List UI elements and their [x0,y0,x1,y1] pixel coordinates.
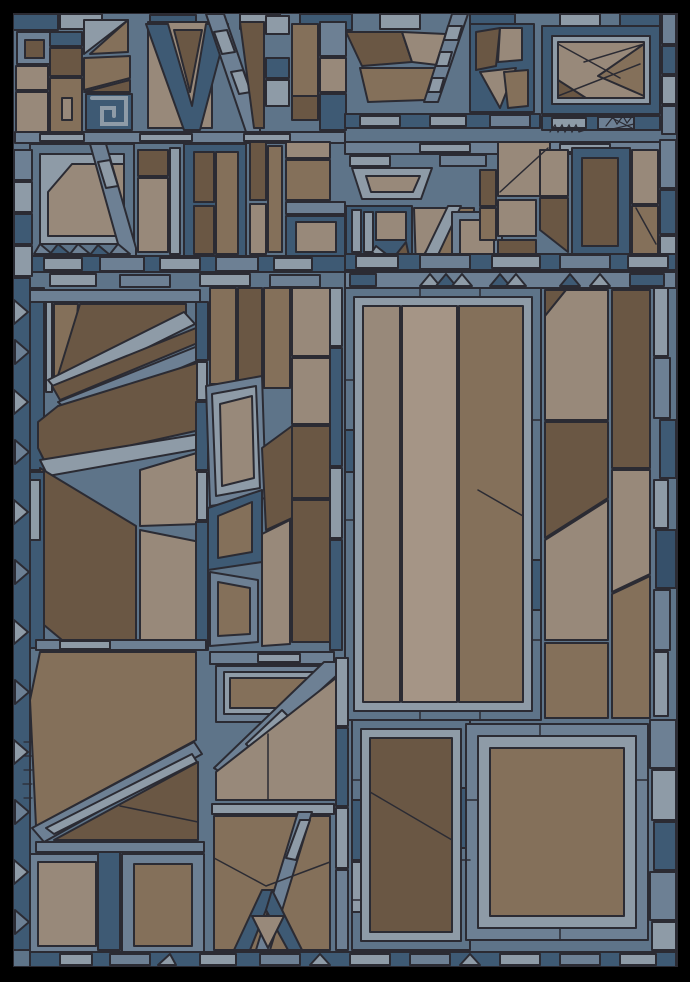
mosaic-cell [630,274,664,286]
mosaic-cell [25,40,44,58]
mosaic-cell [500,954,540,965]
mosaic-cell [200,954,236,965]
mosaic-cell [62,98,72,120]
mosaic-cell [194,206,214,254]
mosaic-cell [350,954,390,965]
mosaic-cell [60,954,92,965]
mosaic-artwork [0,0,690,982]
mosaic-cell [628,256,668,268]
mosaic-cell [14,182,32,212]
mosaic-cell [498,28,522,62]
mosaic-cell [632,206,658,254]
mosaic-cell [560,954,600,965]
mosaic-cell [16,92,48,132]
mosaic-cell [662,46,676,74]
mosaic-cell [330,348,342,466]
mosaic-cell [320,58,346,92]
mosaic-cell [120,275,170,287]
mosaic-cell [370,738,452,932]
mosaic-cell [376,212,406,240]
mosaic-cell [364,212,373,252]
mosaic-cell [210,288,236,384]
mosaic-cell [292,426,330,498]
mosaic-cell [194,152,214,202]
mosaic-cell [490,748,624,916]
mosaic-cell [262,520,290,646]
mosaic-cell [350,274,376,286]
mosaic-cell [40,134,84,141]
mosaic-cell [292,96,318,120]
mosaic-cell [270,275,320,287]
mosaic-cell [292,288,330,356]
mosaic-cell [38,862,96,946]
mosaic-cell [430,116,466,126]
mosaic-cell [612,576,650,718]
mosaic-cell [444,26,462,40]
mosaic-cell [656,530,676,588]
mosaic-cell [350,156,390,166]
mosaic-cell [654,288,668,356]
mosaic-cell [345,430,354,472]
mosaic-cell [266,16,289,34]
mosaic-cell [420,144,470,152]
mosaic-cell [428,78,444,92]
mosaic-cell [498,200,536,236]
mosaic-cell [138,178,168,252]
mosaic-cell [540,150,568,196]
mosaic-cell [286,142,330,158]
mosaic-cell [336,808,348,868]
mosaic-cell [100,257,144,271]
mosaic-cell [654,652,668,716]
mosaic-cell [654,590,670,650]
mosaic-cell [480,208,496,240]
mosaic-cell [504,70,528,108]
mosaic-cell [582,158,618,246]
mosaic-cell [260,954,300,965]
mosaic-cell [662,106,676,134]
mosaic-cell [652,770,676,820]
mosaic-cell [292,358,330,424]
mosaic-cell [170,148,180,254]
mosaic-cell [654,822,676,870]
mosaic-cell [490,115,530,127]
mosaic-cell [13,14,58,30]
mosaic-cell [140,530,200,648]
mosaic-cell [212,804,334,814]
mosaic-cell [216,257,258,271]
mosaic-cell [196,302,208,360]
mosaic-cell [436,52,452,66]
mosaic-cell [654,358,670,418]
mosaic-cell [360,116,400,126]
mosaic-cell [50,48,82,76]
mosaic-cell [356,256,398,268]
mosaic-cell [352,862,361,912]
mosaic-cell [14,246,32,276]
mosaic-cell [266,58,289,78]
mosaic-cell [654,480,668,528]
mosaic-page [0,0,690,982]
mosaic-cell [238,288,262,380]
mosaic-cell [420,255,470,269]
mosaic-cell [652,922,676,950]
mosaic-cell [264,288,290,388]
mosaic-cell [320,94,346,130]
mosaic-cell [244,134,290,141]
mosaic-cell [50,32,82,46]
mosaic-cell [266,80,289,106]
mosaic-cell [612,290,650,468]
mosaic-cell [410,954,450,965]
mosaic-cell [402,306,457,702]
mosaic-cell [650,720,676,768]
mosaic-cell [440,155,486,166]
mosaic-cell [662,76,676,104]
mosaic-cell [320,22,346,56]
mosaic-cell [336,728,348,806]
mosaic-cell [16,66,48,90]
mosaic-cell [220,396,254,486]
black-border [0,0,690,13]
mosaic-cell [612,470,650,592]
mosaic-cell [662,14,676,44]
mosaic-cell [292,24,318,96]
mosaic-cell [292,500,330,642]
mosaic-cell [660,420,676,478]
black-border [0,0,13,982]
mosaic-cell [44,258,82,270]
mosaic-cell [380,14,420,29]
mosaic-cell [492,256,540,268]
mosaic-cell [532,560,541,610]
mosaic-cell [160,258,200,270]
mosaic-cell [258,654,300,662]
mosaic-cell [110,954,150,965]
mosaic-cell [480,170,496,206]
mosaic-cell [98,852,120,950]
mosaic-cell [296,222,336,252]
mosaic-cell [286,202,345,214]
mosaic-cell [476,28,500,70]
mosaic-cell [197,472,207,520]
mosaic-cell [196,522,208,650]
mosaic-cell [134,864,192,946]
mosaic-cell [366,176,420,192]
mosaic-cell [352,210,361,252]
mosaic-cell [330,540,342,650]
mosaic-cell [286,160,330,200]
mosaic-cell [140,134,192,141]
mosaic-cell [545,290,608,420]
mosaic-cell [36,842,204,852]
mosaic-cell [336,870,348,950]
mosaic-cell [30,480,40,540]
mosaic-cell [218,582,250,636]
mosaic-cell [336,658,348,726]
mosaic-cell [620,954,656,965]
mosaic-cell [363,306,400,702]
mosaic-cell [268,146,282,252]
mosaic-cell [330,288,342,346]
mosaic-cell [50,274,96,286]
mosaic-cell [60,641,110,649]
mosaic-cell [200,274,250,286]
mosaic-cell [138,150,168,176]
mosaic-cell [274,258,312,270]
mosaic-cell [28,290,200,302]
mosaic-cell [250,142,266,200]
mosaic-cell [352,800,361,860]
black-border [678,0,690,982]
mosaic-cell [660,190,676,234]
mosaic-cell [560,255,610,269]
mosaic-cell [650,872,676,920]
mosaic-cell [660,140,676,188]
black-border [0,967,690,982]
mosaic-cell [459,306,523,702]
mosaic-cell [14,214,32,244]
mosaic-cell [13,278,30,950]
mosaic-cell [330,468,342,538]
mosaic-cell [250,204,266,254]
mosaic-cell [14,150,32,180]
mosaic-cell [632,150,658,204]
mosaic-cell [545,643,608,718]
mosaic-cell [216,152,238,254]
